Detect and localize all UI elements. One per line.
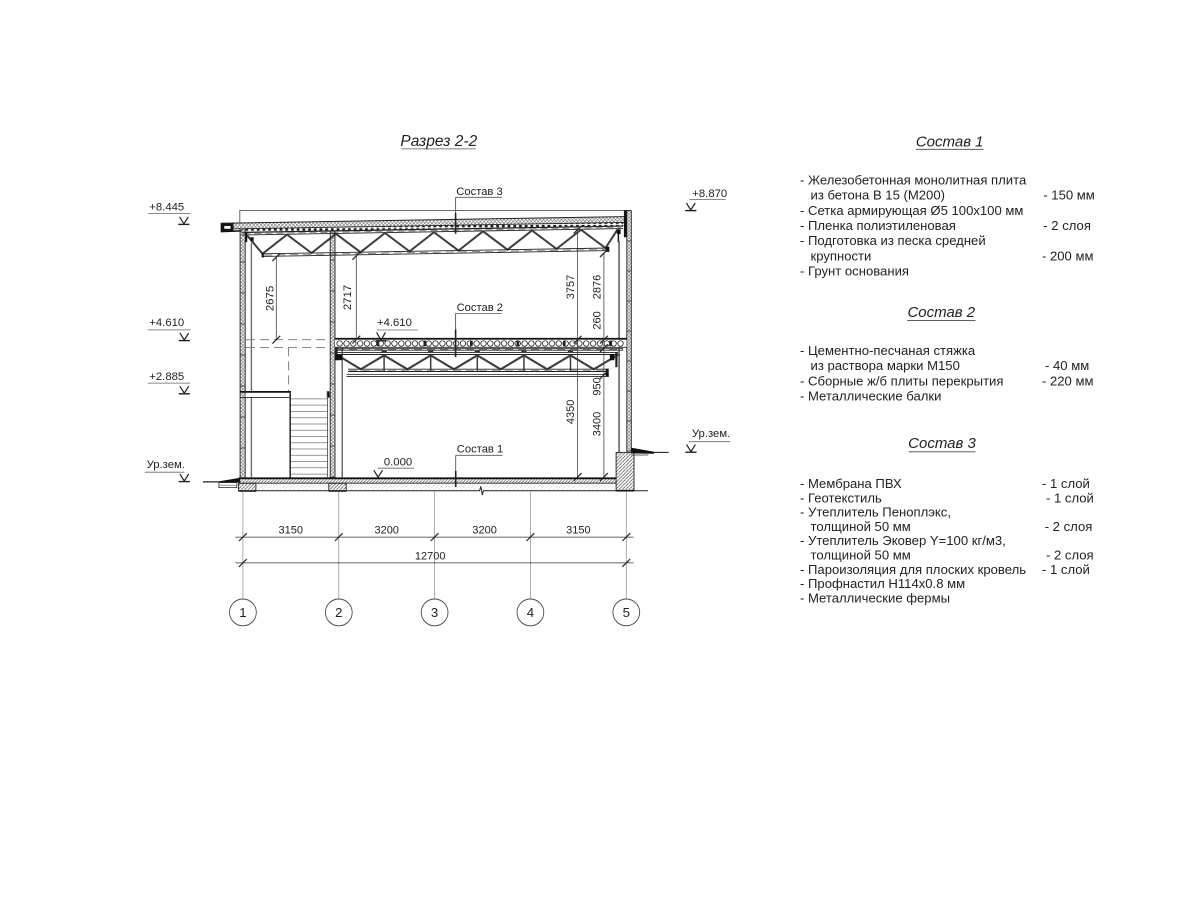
svg-text:- Утеплитель Пеноплэкс,: - Утеплитель Пеноплэкс,: [800, 505, 951, 520]
svg-text:2675: 2675: [265, 286, 277, 311]
svg-text:3400: 3400: [592, 412, 604, 436]
svg-text:из бетона В 15 (М200): из бетона В 15 (М200): [811, 188, 946, 203]
svg-text:- Пленка полиэтиленовая: - Пленка полиэтиленовая: [800, 218, 956, 233]
svg-text:3757: 3757: [565, 275, 577, 299]
svg-text:+4.610: +4.610: [149, 317, 184, 329]
svg-text:Ур.зем.: Ур.зем.: [147, 459, 185, 471]
svg-text:- 200 мм: - 200 мм: [1042, 248, 1094, 263]
svg-text:Состав 2: Состав 2: [457, 302, 503, 314]
svg-text:- Мембрана ПВХ: - Мембрана ПВХ: [800, 476, 902, 491]
svg-text:0.000: 0.000: [384, 457, 412, 469]
svg-text:- Сетка армирующая Ø5 100х100: - Сетка армирующая Ø5 100х100 мм: [800, 203, 1023, 218]
svg-text:- Геотекстиль: - Геотекстиль: [800, 490, 882, 505]
svg-text:+8.870: +8.870: [692, 188, 727, 200]
svg-text:- Сборные ж/б плиты перекрытия: - Сборные ж/б плиты перекрытия: [800, 373, 1003, 388]
svg-text:Состав 1: Состав 1: [457, 443, 503, 455]
svg-text:- 2 слоя: - 2 слоя: [1043, 218, 1091, 233]
svg-text:крупности: крупности: [811, 248, 872, 263]
svg-text:260: 260: [592, 311, 604, 329]
svg-text:- Железобетонная монолитная п: - Железобетонная монолитная плита: [800, 172, 1027, 187]
svg-text:- Металлические балки: - Металлические балки: [800, 389, 941, 404]
svg-text:3: 3: [431, 605, 438, 620]
svg-text:4350: 4350: [565, 400, 577, 424]
svg-text:- 1 слой: - 1 слой: [1042, 562, 1090, 577]
svg-text:Ур.зем.: Ур.зем.: [692, 428, 730, 440]
svg-text:+4.610: +4.610: [377, 317, 412, 329]
svg-text:2717: 2717: [342, 285, 354, 310]
svg-text:толщиной 50 мм: толщиной 50 мм: [811, 519, 911, 534]
svg-text:из раствора марки М150: из раствора марки М150: [811, 358, 960, 373]
svg-text:- Профнастил Н114х0.8 мм: - Профнастил Н114х0.8 мм: [800, 576, 965, 591]
svg-text:- 1 слой: - 1 слой: [1042, 476, 1090, 491]
svg-text:- Пароизоляция для плоских кро: - Пароизоляция для плоских кровель: [800, 562, 1026, 577]
svg-text:- Грунт основания: - Грунт основания: [800, 264, 909, 279]
svg-text:Разрез 2-2: Разрез 2-2: [400, 133, 477, 150]
svg-text:4: 4: [527, 605, 534, 620]
svg-text:950: 950: [591, 377, 603, 395]
svg-text:3150: 3150: [566, 524, 590, 536]
svg-text:Состав 1: Состав 1: [916, 133, 984, 150]
svg-text:Состав 3: Состав 3: [456, 186, 502, 198]
svg-text:12700: 12700: [415, 550, 446, 562]
svg-text:- 2 слоя: - 2 слоя: [1046, 548, 1094, 563]
svg-text:- Подготовка из песка средней: - Подготовка из песка средней: [800, 233, 986, 248]
svg-text:- Утеплитель Эковер Y=100 кг/м: - Утеплитель Эковер Y=100 кг/м3,: [800, 533, 1006, 548]
svg-text:2876: 2876: [592, 275, 604, 299]
svg-text:+2.885: +2.885: [149, 371, 184, 383]
svg-text:1: 1: [239, 605, 246, 620]
svg-text:2: 2: [335, 605, 342, 620]
svg-text:- Металлические фермы: - Металлические фермы: [800, 590, 950, 605]
svg-text:- 220 мм: - 220 мм: [1042, 373, 1094, 388]
svg-text:3200: 3200: [374, 524, 398, 536]
svg-text:- 2 слоя: - 2 слоя: [1045, 519, 1093, 534]
svg-text:3150: 3150: [279, 524, 303, 536]
svg-text:- 150 мм: - 150 мм: [1043, 188, 1095, 203]
svg-text:5: 5: [623, 605, 630, 620]
svg-text:+8.445: +8.445: [149, 202, 184, 214]
svg-text:3200: 3200: [472, 524, 496, 536]
svg-text:- 40 мм: - 40 мм: [1045, 358, 1089, 373]
svg-text:- 1 слой: - 1 слой: [1046, 490, 1094, 505]
svg-text:Состав 2: Состав 2: [907, 304, 975, 321]
svg-text:Состав 3: Состав 3: [908, 435, 976, 452]
svg-text:толщиной 50 мм: толщиной 50 мм: [811, 548, 911, 563]
svg-text:- Цементно-песчаная стяжка: - Цементно-песчаная стяжка: [800, 343, 976, 358]
